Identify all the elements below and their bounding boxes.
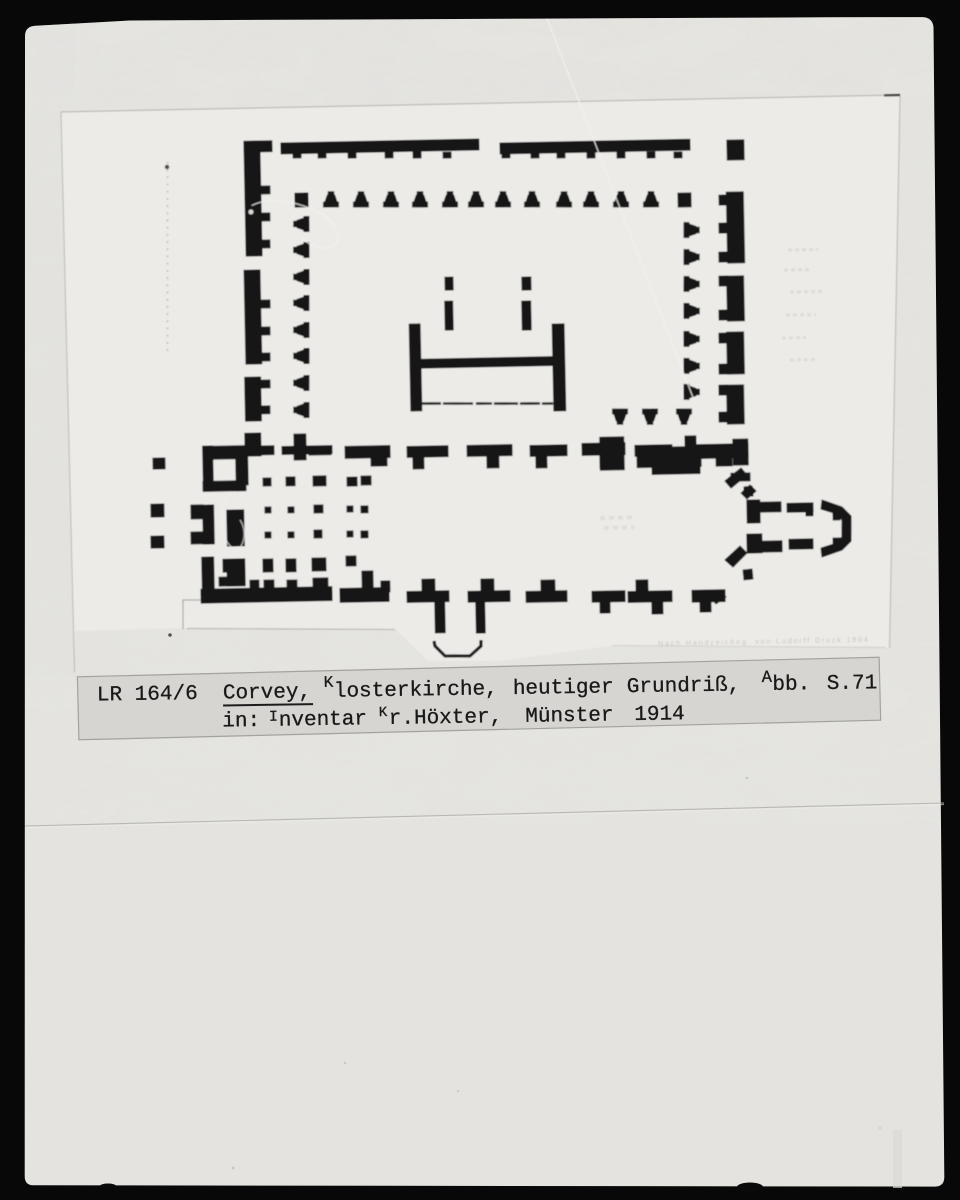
svg-text:K: K xyxy=(324,674,334,692)
svg-text:Grundriß,: Grundriß, xyxy=(627,674,741,699)
svg-text:1914: 1914 xyxy=(634,703,685,727)
svg-text:bb.: bb. xyxy=(772,673,810,697)
svg-text:A: A xyxy=(762,669,773,688)
svg-text:nventar: nventar xyxy=(279,708,368,732)
svg-text:r.Höxter,: r.Höxter, xyxy=(389,706,503,731)
svg-text:heutiger: heutiger xyxy=(513,676,614,701)
svg-text:in:: in: xyxy=(222,710,260,734)
svg-text:Münster: Münster xyxy=(525,704,614,728)
svg-text:LR 164/6: LR 164/6 xyxy=(97,683,198,708)
svg-text:S.71: S.71 xyxy=(827,672,878,696)
svg-text:I: I xyxy=(269,709,278,726)
svg-text:Corvey,: Corvey, xyxy=(223,681,312,705)
svg-text:losterkirche,: losterkirche, xyxy=(334,678,498,704)
svg-text:K: K xyxy=(379,705,388,721)
